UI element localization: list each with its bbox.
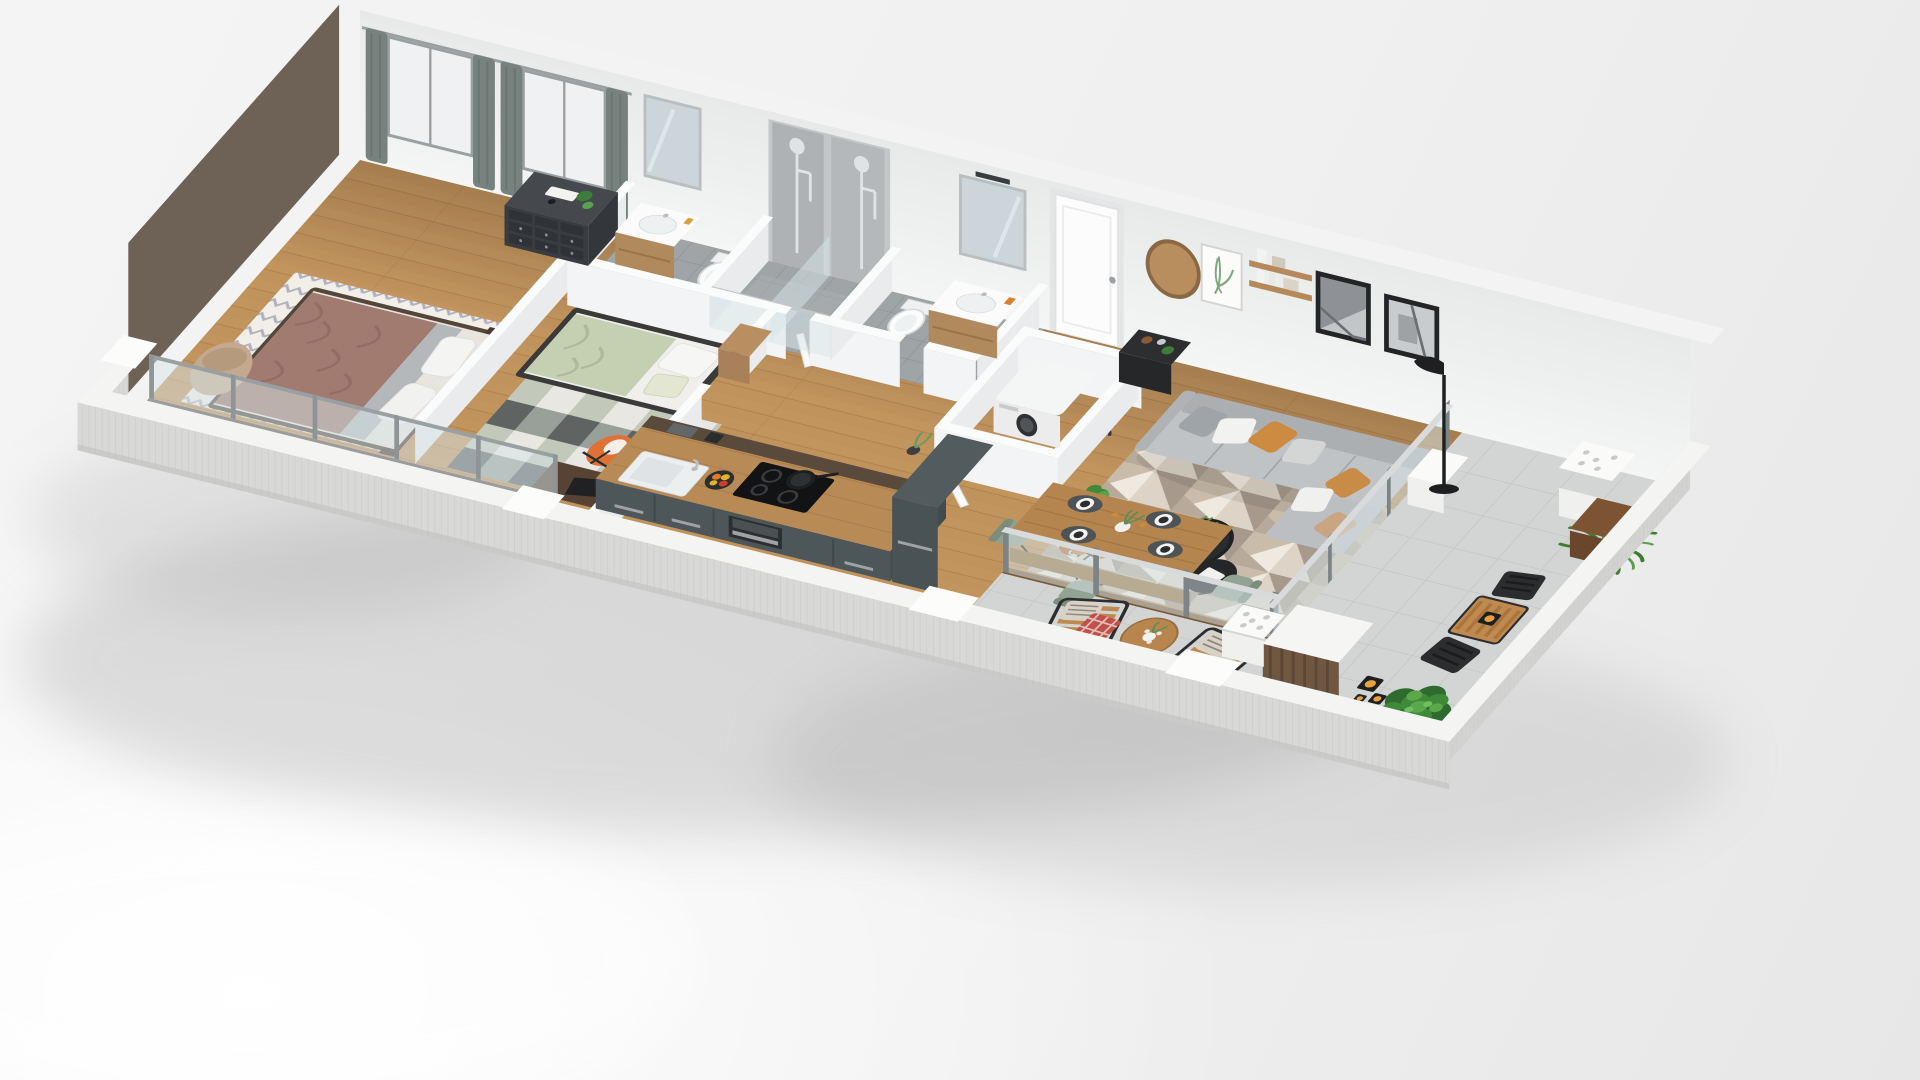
floorplan-render [0, 0, 1920, 1080]
floor-glow [0, 810, 680, 1080]
shower-wall [769, 119, 891, 291]
botanical-print [1202, 244, 1242, 310]
entrance-door [1050, 187, 1124, 349]
bath1-mirror [645, 96, 700, 190]
